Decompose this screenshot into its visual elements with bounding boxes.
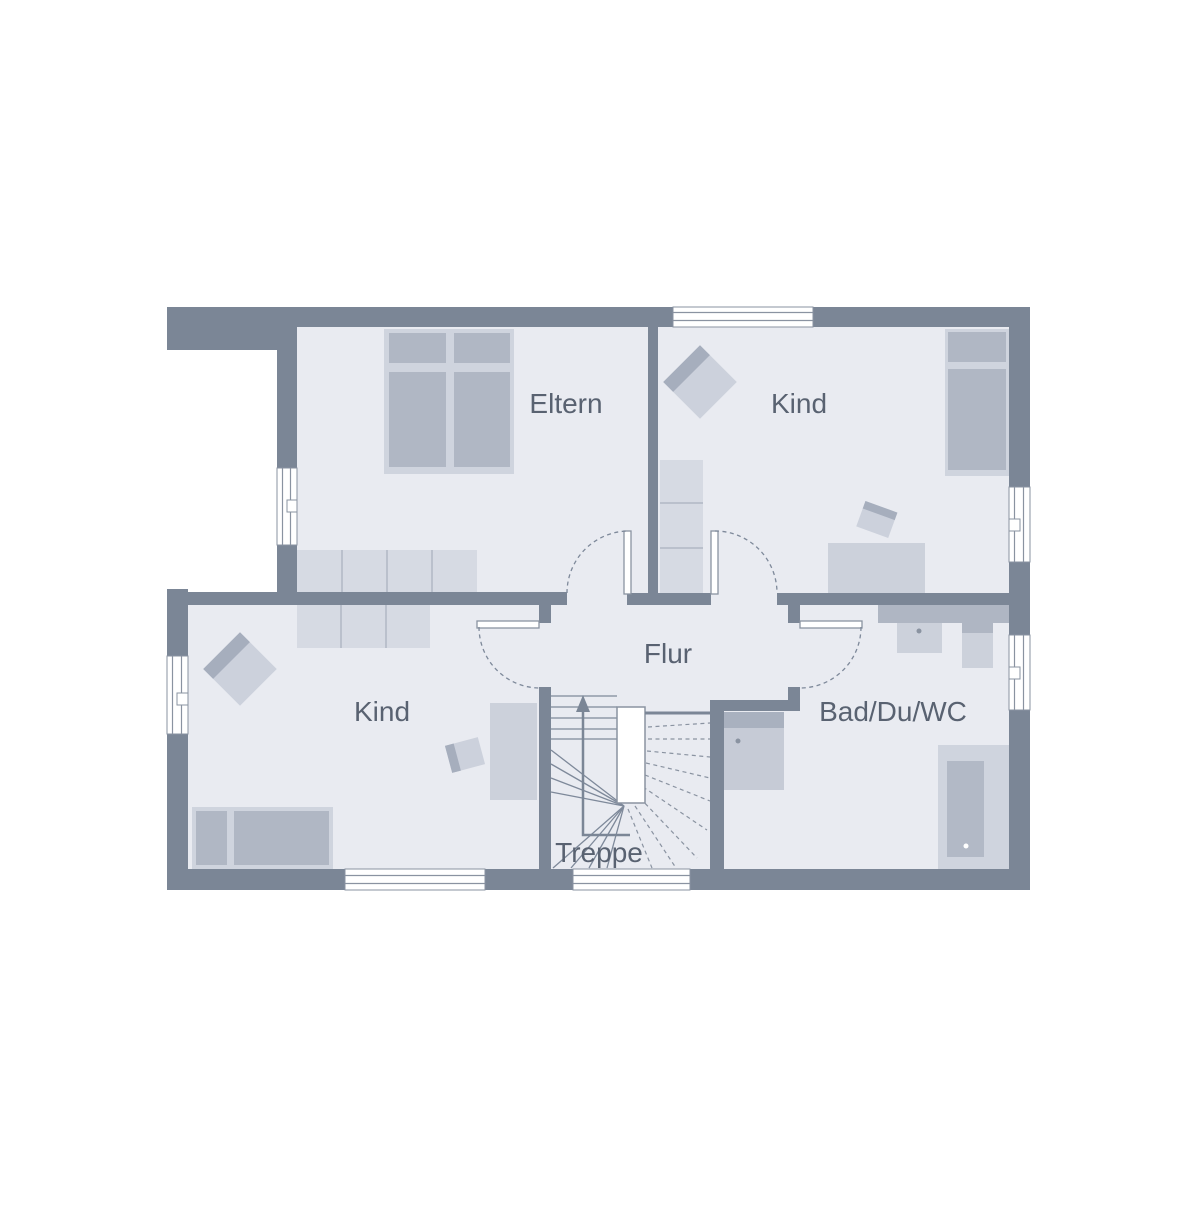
room-label-bad: Bad/Du/WC (819, 696, 967, 727)
desk-kind-top (828, 543, 925, 593)
wardrobe-kind-bottom (297, 605, 430, 648)
floor-plan: Eltern Kind Kind Flur Bad/Du/WC Treppe (0, 0, 1200, 1200)
window-top (673, 307, 813, 327)
window-bottom-kind (345, 869, 485, 890)
window-left-kind (167, 656, 188, 734)
desk-kind-bottom (490, 703, 537, 800)
room-label-eltern: Eltern (529, 388, 602, 419)
shower (724, 712, 784, 790)
window-left-eltern (277, 468, 297, 545)
window-bottom-stair (573, 869, 690, 890)
room-label-kind-bottom: Kind (354, 696, 410, 727)
single-bed-kind-top (945, 329, 1009, 476)
window-right-bad (1009, 635, 1030, 710)
room-label-kind-top: Kind (771, 388, 827, 419)
washbasin (897, 623, 942, 653)
double-bed (384, 329, 514, 474)
room-label-treppe: Treppe (555, 837, 643, 868)
bathtub (938, 745, 1009, 869)
room-label-flur: Flur (644, 638, 692, 669)
window-right-kind (1009, 487, 1030, 562)
wc (962, 605, 993, 668)
wardrobe-kind-top (660, 460, 703, 593)
wardrobe-eltern (297, 550, 477, 593)
single-bed-kind-bottom (192, 807, 333, 869)
